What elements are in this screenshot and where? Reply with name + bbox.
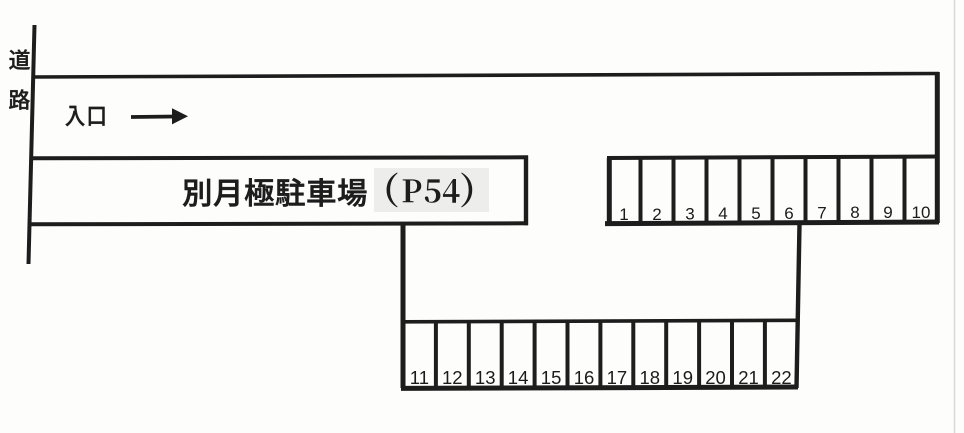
svg-text:20: 20 <box>705 367 726 388</box>
svg-text:1: 1 <box>619 205 628 224</box>
svg-text:19: 19 <box>672 367 693 388</box>
svg-text:14: 14 <box>508 367 529 388</box>
svg-text:5: 5 <box>751 204 760 223</box>
svg-text:16: 16 <box>574 367 595 388</box>
svg-text:2: 2 <box>652 205 661 224</box>
svg-text:6: 6 <box>784 204 793 223</box>
svg-text:21: 21 <box>738 367 759 388</box>
svg-text:18: 18 <box>640 367 661 388</box>
svg-text:15: 15 <box>541 367 562 388</box>
svg-text:9: 9 <box>883 203 892 222</box>
svg-text:8: 8 <box>850 203 859 222</box>
svg-text:13: 13 <box>475 367 496 388</box>
svg-text:12: 12 <box>442 367 463 388</box>
svg-text:17: 17 <box>607 367 628 388</box>
svg-text:7: 7 <box>817 204 826 223</box>
svg-text:4: 4 <box>718 204 727 223</box>
svg-text:3: 3 <box>685 205 694 224</box>
svg-text:11: 11 <box>410 367 429 388</box>
svg-text:22: 22 <box>771 367 792 388</box>
svg-text:10: 10 <box>912 203 931 222</box>
